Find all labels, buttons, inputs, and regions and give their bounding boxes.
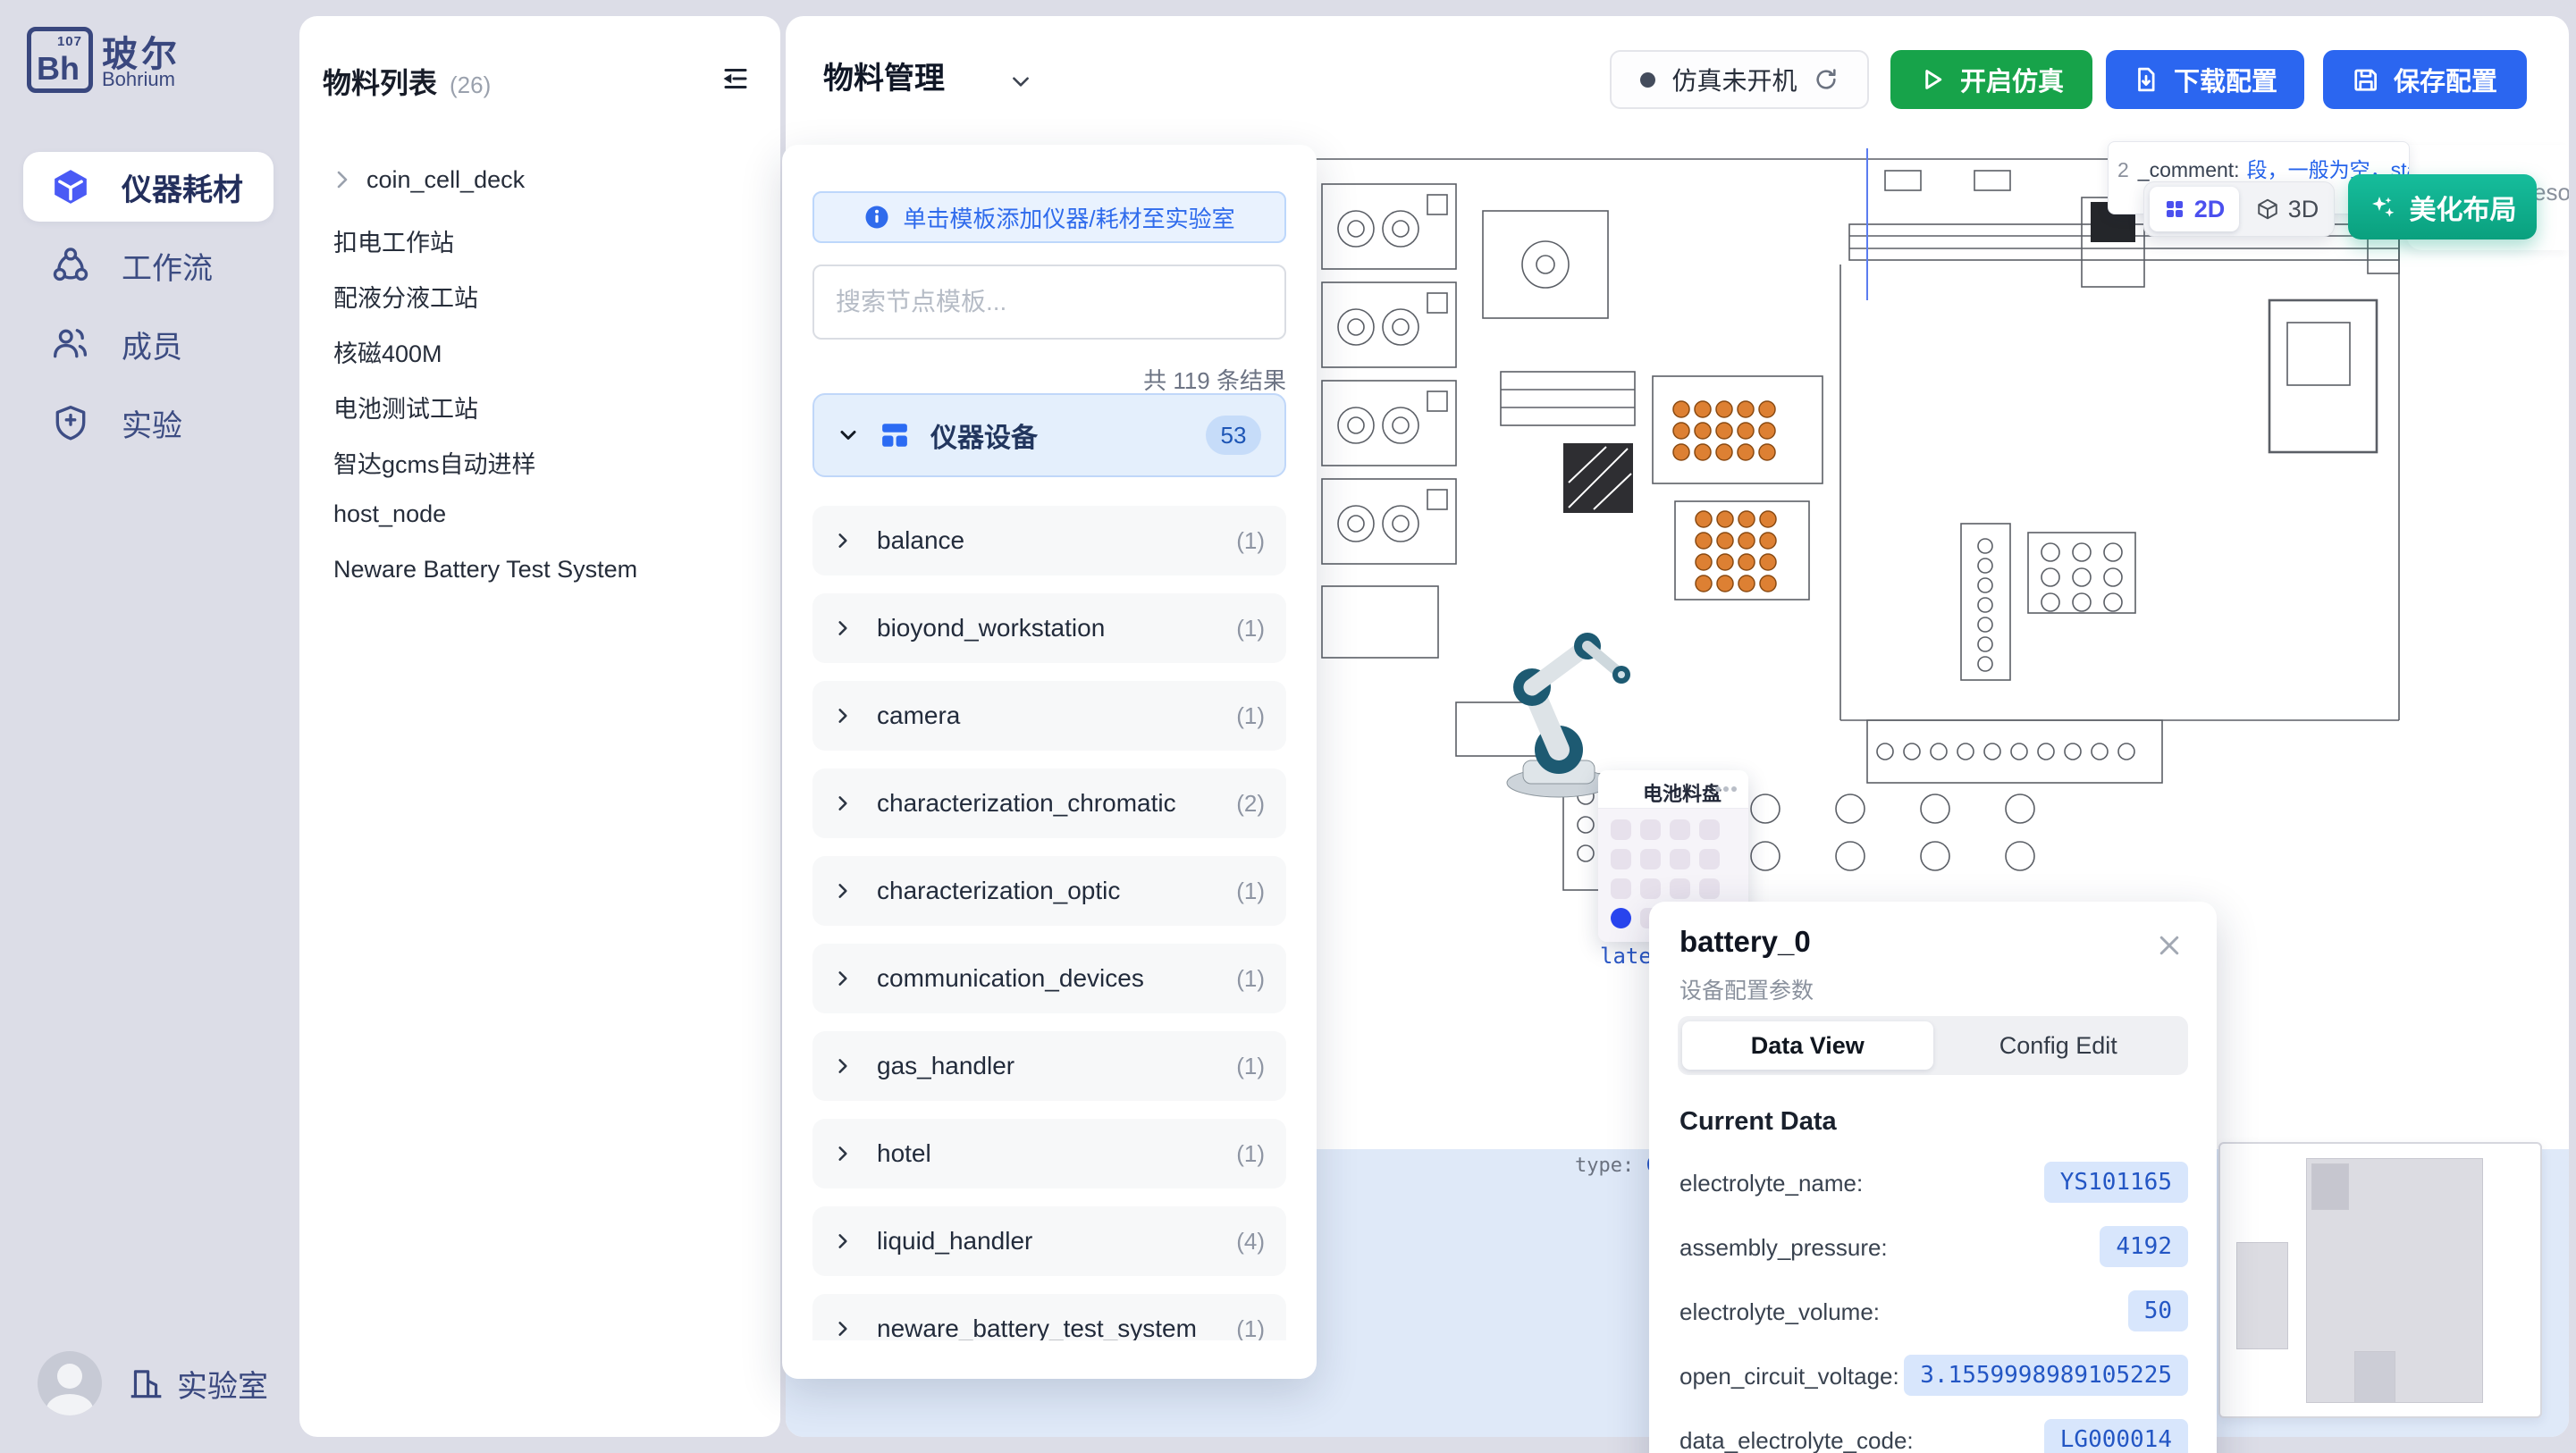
category-count: (1) — [1236, 615, 1265, 643]
category-count: (1) — [1236, 527, 1265, 555]
category-row-camera[interactable]: camera (1) — [812, 681, 1286, 751]
chevron-right-icon — [332, 169, 353, 190]
category-label: bioyond_workstation — [877, 614, 1236, 643]
minimap-shape — [2354, 1351, 2395, 1403]
tray-slot[interactable] — [1670, 849, 1690, 869]
category-list: balance (1) bioyond_workstation (1) came… — [812, 506, 1286, 1340]
chevron-right-icon — [834, 1320, 852, 1338]
annotation-prefix: 2 — [2117, 158, 2129, 181]
toggle-3d-button[interactable]: 3D — [2244, 187, 2330, 231]
close-icon[interactable] — [2156, 932, 2183, 959]
tray-slot[interactable] — [1699, 849, 1720, 869]
toggle-2d-label: 2D — [2194, 196, 2226, 223]
field-value: YS101165 — [2044, 1162, 2188, 1203]
tab-data-view[interactable]: Data View — [1682, 1021, 1933, 1070]
toggle-3d-label: 3D — [2288, 196, 2319, 223]
tray-slot[interactable] — [1699, 878, 1720, 899]
device-subtitle: 设备配置参数 — [1679, 973, 1814, 1005]
tray-slot[interactable] — [1611, 849, 1631, 869]
beautify-layout-label: 美化布局 — [2410, 188, 2517, 227]
logo-number: 107 — [57, 34, 82, 49]
save-config-label: 保存配置 — [2394, 61, 2497, 98]
category-label: hotel — [877, 1139, 1236, 1168]
group-row-instruments[interactable]: 仪器设备 53 — [812, 393, 1286, 477]
building-icon — [127, 1365, 164, 1402]
category-label: gas_handler — [877, 1052, 1236, 1080]
status-text: 仿真未开机 — [1671, 62, 1797, 97]
field-label: open_circuit_voltage: — [1679, 1363, 1899, 1390]
category-row-characterization-chromatic[interactable]: characterization_chromatic (2) — [812, 768, 1286, 838]
category-label: characterization_optic — [877, 877, 1236, 905]
sidebar-item-label: 实验 — [122, 401, 182, 445]
detail-tabs: Data View Config Edit — [1678, 1016, 2188, 1075]
material-item-label: coin_cell_deck — [366, 166, 525, 194]
category-row-communication-devices[interactable]: communication_devices (1) — [812, 944, 1286, 1013]
materials-count: (26) — [450, 71, 491, 98]
field-value: LG000014 — [2044, 1419, 2188, 1453]
field-label: electrolyte_name: — [1679, 1170, 1863, 1197]
chevron-right-icon — [834, 707, 852, 725]
status-dot-icon — [1640, 72, 1655, 88]
workflow-icon — [52, 247, 89, 284]
tray-slot[interactable] — [1611, 819, 1631, 840]
sidebar-item-experiments[interactable]: 实验 — [23, 388, 274, 458]
user-avatar[interactable] — [38, 1351, 102, 1415]
page-title[interactable]: 物料管理 — [823, 54, 945, 97]
current-data-heading: Current Data — [1679, 1107, 1837, 1137]
chevron-right-icon — [834, 794, 852, 812]
category-row-characterization-optic[interactable]: characterization_optic (1) — [812, 856, 1286, 926]
chevron-down-icon[interactable] — [1009, 70, 1032, 93]
field-label: assembly_pressure: — [1679, 1234, 1888, 1262]
file-download-icon — [2133, 66, 2159, 93]
tray-slot-selected-battery[interactable] — [1611, 908, 1631, 928]
chevron-down-icon — [838, 424, 859, 446]
category-count: (1) — [1236, 878, 1265, 905]
category-label: characterization_chromatic — [877, 789, 1236, 818]
toggle-2d-button[interactable]: 2D — [2150, 187, 2239, 231]
minimap[interactable] — [2218, 1142, 2542, 1418]
field-value: 50 — [2128, 1290, 2188, 1331]
group-label: 仪器设备 — [930, 416, 1184, 455]
start-simulation-button[interactable]: 开启仿真 — [1890, 50, 2092, 109]
category-count: (1) — [1236, 1053, 1265, 1080]
field-label: electrolyte_volume: — [1679, 1298, 1880, 1326]
category-count: (1) — [1236, 702, 1265, 730]
category-count: (1) — [1236, 1140, 1265, 1168]
tray-title: 电池料盘 — [1643, 778, 1722, 807]
download-config-button[interactable]: 下载配置 — [2106, 50, 2304, 109]
field-value: 4192 — [2100, 1226, 2188, 1267]
members-icon — [52, 325, 89, 363]
hint-text: 单击模板添加仪器/耗材至实验室 — [903, 201, 1234, 234]
logo-symbol: Bh — [37, 50, 80, 88]
template-panel: 单击模板添加仪器/耗材至实验室 共 119 条结果 仪器设备 53 balanc… — [782, 145, 1317, 1379]
category-row-neware-battery-test-system[interactable]: neware_battery_test_system (1) — [812, 1294, 1286, 1340]
sidebar-item-members[interactable]: 成员 — [23, 309, 274, 379]
category-label: neware_battery_test_system — [877, 1314, 1236, 1340]
category-row-gas-handler[interactable]: gas_handler (1) — [812, 1031, 1286, 1101]
category-label: liquid_handler — [877, 1227, 1236, 1256]
layout-grid-icon — [880, 421, 909, 449]
result-count: 共 119 条结果 — [812, 363, 1286, 396]
category-count: (2) — [1236, 790, 1265, 818]
category-row-liquid-handler[interactable]: liquid_handler (4) — [812, 1206, 1286, 1276]
sidebar-item-instruments[interactable]: 仪器耗材 — [23, 152, 274, 222]
app-root: 107 Bh 玻尔 Bohrium 仪器耗材 工作流 — [0, 0, 2576, 1453]
tray-slot[interactable] — [1640, 819, 1661, 840]
material-item[interactable]: Neware Battery Test System — [333, 556, 637, 584]
sidebar-footer: 实验室 — [38, 1348, 295, 1419]
materials-title: 物料列表(26) — [323, 61, 491, 102]
sample-grid — [1673, 401, 1776, 592]
chevron-right-icon — [834, 1057, 852, 1075]
lab-link[interactable]: 实验室 — [177, 1362, 268, 1406]
tray-slot[interactable] — [1670, 878, 1690, 899]
chevron-right-icon — [834, 882, 852, 900]
sidebar-item-label: 工作流 — [122, 244, 213, 288]
more-options-icon[interactable] — [1714, 785, 1738, 793]
play-icon — [1919, 66, 1946, 93]
material-item[interactable]: 智达gcms自动进样 — [333, 445, 536, 480]
tray-slot[interactable] — [1640, 849, 1661, 869]
category-count: (4) — [1236, 1228, 1265, 1256]
sidebar: 107 Bh 玻尔 Bohrium 仪器耗材 工作流 — [0, 0, 295, 1453]
shield-icon — [52, 404, 89, 441]
category-row-hotel[interactable]: hotel (1) — [812, 1119, 1286, 1188]
collapse-list-icon[interactable] — [720, 63, 752, 95]
category-label: camera — [877, 701, 1236, 730]
brand-name-en: Bohrium — [102, 68, 175, 91]
template-search-input[interactable] — [812, 265, 1286, 340]
chevron-right-icon — [834, 619, 852, 637]
tray-slot[interactable] — [1670, 819, 1690, 840]
material-item[interactable]: 核磁400M — [333, 334, 442, 369]
category-label: communication_devices — [877, 964, 1236, 993]
save-icon — [2353, 66, 2379, 93]
minimap-shape — [2236, 1242, 2288, 1349]
tray-slot[interactable] — [1640, 878, 1661, 899]
material-item[interactable]: 扣电工作站 — [333, 223, 454, 258]
resource-fragment-text: esou — [2533, 179, 2569, 206]
category-row-bioyond-workstation[interactable]: bioyond_workstation (1) — [812, 593, 1286, 663]
sidebar-item-workflow[interactable]: 工作流 — [23, 231, 274, 300]
category-count: (1) — [1236, 965, 1265, 993]
chevron-right-icon — [834, 970, 852, 987]
chevron-right-icon — [834, 1232, 852, 1250]
chevron-right-icon — [834, 1145, 852, 1163]
view-mode-toggle: 2D 3D — [2143, 181, 2335, 237]
download-config-label: 下载配置 — [2174, 61, 2277, 98]
sidebar-item-label: 仪器耗材 — [122, 165, 243, 209]
start-simulation-label: 开启仿真 — [1960, 61, 2064, 98]
category-row-balance[interactable]: balance (1) — [812, 506, 1286, 575]
sparkles-icon — [2369, 193, 2397, 222]
field-value: 3.1559998989105225 — [1904, 1355, 2188, 1396]
save-config-button[interactable]: 保存配置 — [2323, 50, 2527, 109]
material-item[interactable]: 配液分液工站 — [333, 279, 478, 314]
device-title: battery_0 — [1679, 925, 1811, 959]
chevron-right-icon — [834, 532, 852, 550]
cube-icon — [52, 168, 89, 206]
annotation-key: _comment: — [2138, 158, 2240, 181]
tray-slot[interactable] — [1611, 878, 1631, 899]
minimap-shape — [2311, 1163, 2349, 1210]
material-item[interactable]: host_node — [333, 500, 446, 528]
beautify-layout-button[interactable]: 美化布局 — [2348, 174, 2537, 239]
cube-3d-icon — [2256, 197, 2279, 221]
grid-2d-icon — [2164, 198, 2185, 220]
material-item[interactable]: 电池测试工站 — [333, 390, 478, 424]
category-count: (1) — [1236, 1315, 1265, 1341]
bohrium-logo: 107 Bh — [27, 27, 93, 93]
sidebar-item-label: 成员 — [122, 323, 182, 366]
materials-panel: 物料列表(26) coin_cell_deck 扣电工作站 配液分液工站 核磁4… — [299, 16, 780, 1437]
simulation-status[interactable]: 仿真未开机 — [1610, 50, 1869, 109]
plate-label-fragment: late — [1600, 944, 1652, 969]
refresh-icon[interactable] — [1814, 67, 1839, 92]
category-label: balance — [877, 526, 1236, 555]
field-label: data_electrolyte_code: — [1679, 1427, 1914, 1453]
tray-slot[interactable] — [1699, 819, 1720, 840]
hint-banner: 单击模板添加仪器/耗材至实验室 — [812, 191, 1286, 243]
device-detail-panel: battery_0 设备配置参数 Data View Config Edit C… — [1649, 902, 2217, 1453]
group-count-badge: 53 — [1206, 416, 1261, 455]
info-icon — [863, 204, 890, 231]
tab-config-edit[interactable]: Config Edit — [1933, 1021, 2185, 1070]
